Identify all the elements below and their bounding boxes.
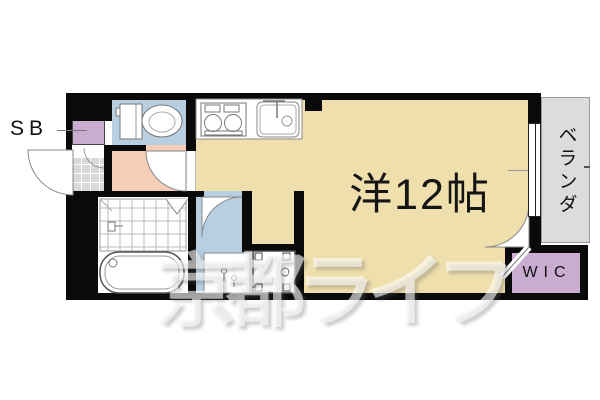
hall-kitchen-opening: [186, 151, 196, 191]
sb-label: SB: [10, 117, 48, 141]
washer-pan-icon: [253, 251, 295, 293]
sb-leader-line: [57, 130, 87, 131]
veranda-edge-tick: [584, 166, 590, 168]
bathroom-tile-area: [100, 199, 188, 251]
washroom-door-arc: [202, 197, 242, 237]
window-mullion: [535, 124, 536, 216]
entrance-step-arc: [84, 148, 104, 168]
toilet-icon: [116, 104, 182, 139]
veranda-window: [528, 123, 541, 217]
washbasin-icon: [204, 253, 250, 293]
shower-fixture-icon: [108, 222, 115, 231]
veranda-label: ベランダ: [553, 100, 579, 242]
kitchen-sink-icon: [257, 101, 299, 137]
floor-plan: SB 洋12帖 ベランダ WIC 京都ライフ: [0, 0, 600, 400]
bathtub-icon: [100, 252, 184, 293]
main-room-label: 洋12帖: [325, 160, 515, 222]
wic-label: WIC: [512, 264, 582, 282]
toilet-door-arc: [146, 151, 186, 191]
entrance-door-arc: [28, 150, 73, 195]
